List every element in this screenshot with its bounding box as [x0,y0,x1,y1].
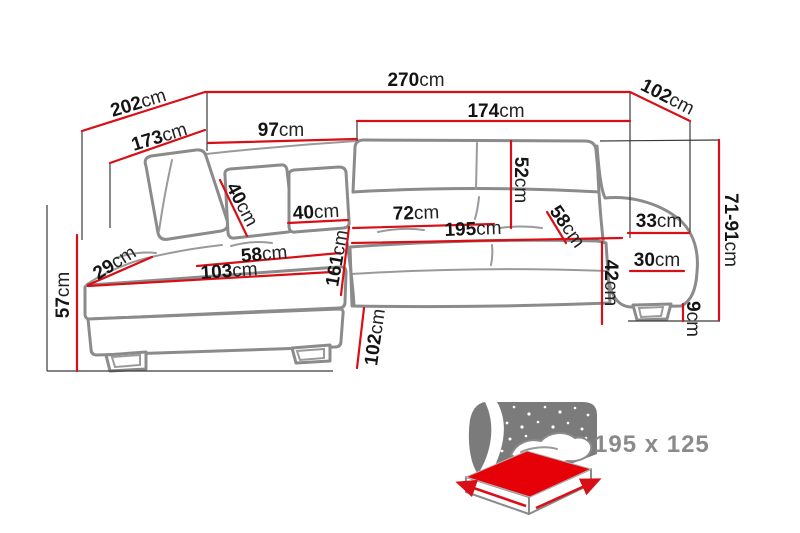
right-seat-curve-a [378,229,424,232]
dim-label-chaise-depth-inner: 173cm [129,119,190,156]
dim-label-armrest-base-width: 30cm [634,250,680,271]
dim-label-chaise-front-width: 102cm [361,308,390,367]
backrest-seam-vertical [476,143,477,189]
headrest [145,150,228,240]
sleeping-area-size-label: 195 x 125 [594,431,710,458]
dim-label-seat-front-height: 42cm [600,260,621,306]
diagram-canvas: 270cm 102cm 202cm 173cm 97cm 174cm 71-91… [0,0,800,533]
right-seat-curve-b [500,227,542,229]
dim-label-leg-height: 9cm [682,301,703,337]
dim-label-seat-depth-right: 72cm [392,202,439,225]
sofa-right-foot [633,304,671,320]
ext-height-top [600,140,720,141]
dim-label-backrest-height: 52cm [510,157,531,203]
dim-label-armrest-top-width: 33cm [636,211,682,232]
dim-label-sleeping-length: 195cm [444,218,502,241]
dim-label-height-range: 71-91cm [720,193,741,267]
dim-label-left-armrest-height: 57cm [53,272,74,318]
dim-label-chaise-seat-width: 103cm [200,259,258,284]
sleeping-function-icon: 195 x 125 [459,402,710,514]
dim-label-chaise-depth-outer: 202cm [108,85,169,122]
sofa-dimension-diagram: 270cm 102cm 202cm 173cm 97cm 174cm 71-91… [0,0,800,533]
dim-label-total-width: 270cm [387,70,444,91]
dim-label-pillow-b: 40cm [292,201,340,224]
dim-label-chaise-back-width: 97cm [258,120,304,141]
dim-label-back-width: 174cm [467,101,524,122]
backrest-seam-vertical-lower [475,197,479,219]
dim-label-side-depth: 102cm [637,75,697,120]
dim-label-left-armrest-width: 29cm [90,242,141,284]
night-sky-crescent [469,402,491,474]
